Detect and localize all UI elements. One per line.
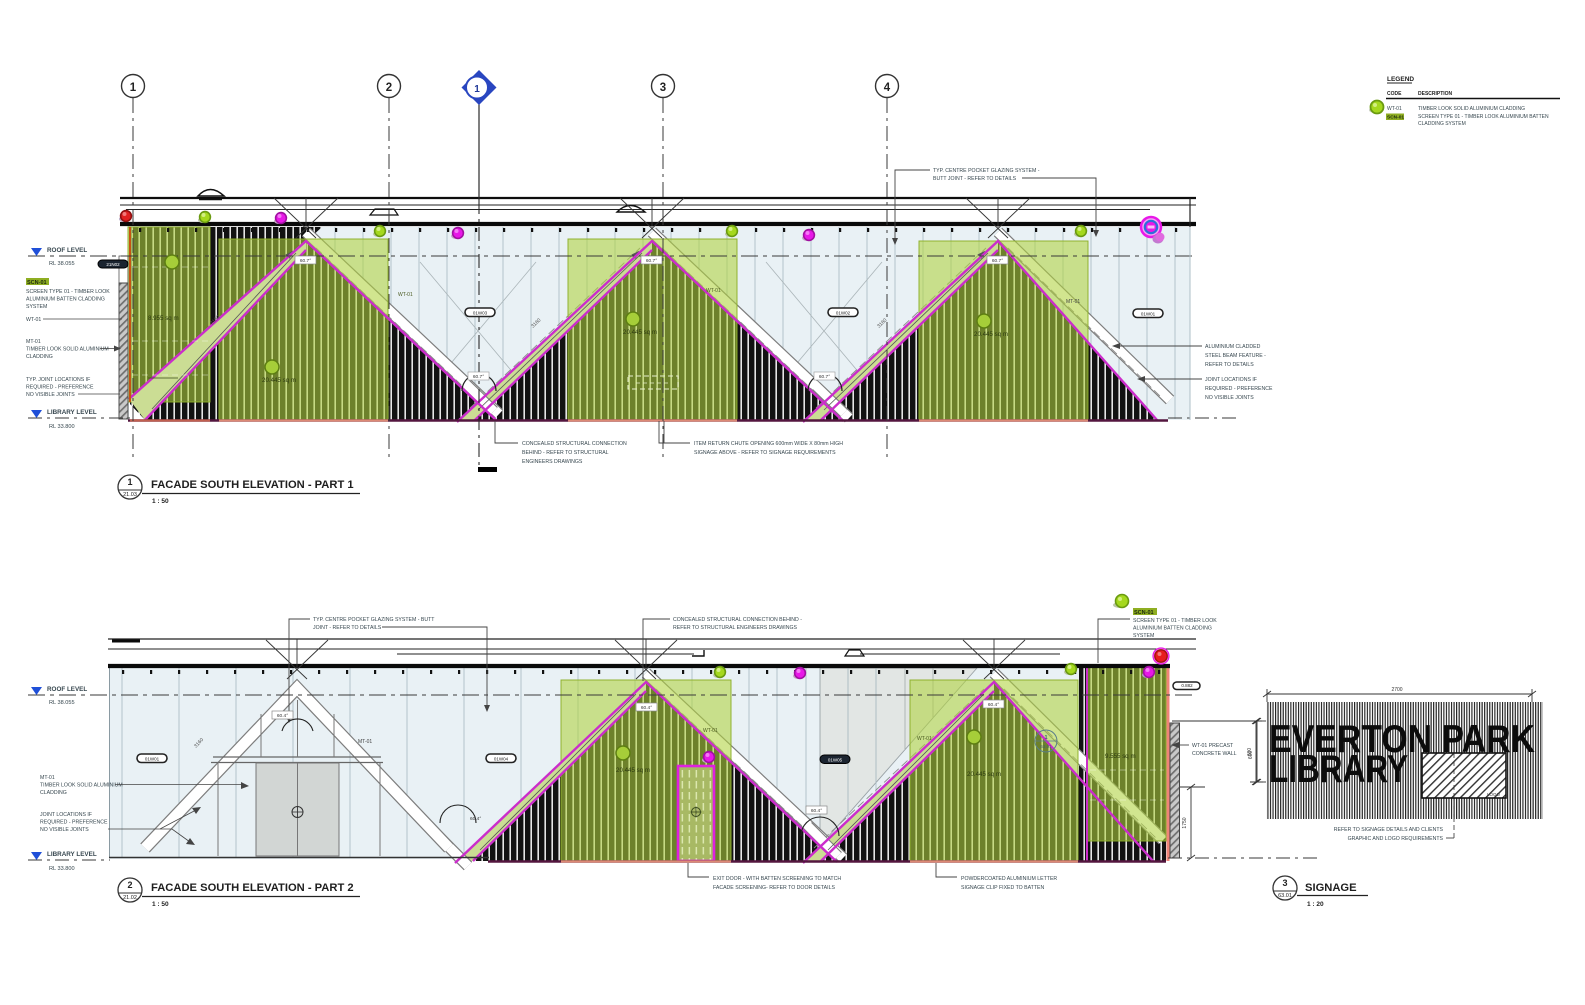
svg-text:RL 38.055: RL 38.055 xyxy=(49,700,75,706)
svg-text:MT-01: MT-01 xyxy=(1066,299,1080,305)
svg-text:1: 1 xyxy=(130,82,137,94)
svg-text:60.7°: 60.7° xyxy=(992,258,1003,264)
svg-text:FACADE SOUTH ELEVATION - PART: FACADE SOUTH ELEVATION - PART 1 xyxy=(151,479,354,491)
svg-text:JOINT - REFER TO DETAILS: JOINT - REFER TO DETAILS xyxy=(313,625,382,631)
svg-text:60.4°: 60.4° xyxy=(277,713,288,719)
svg-text:1 : 20: 1 : 20 xyxy=(1307,901,1324,908)
svg-text:SIGNAGE CLIP FIXED TO BATTEN: SIGNAGE CLIP FIXED TO BATTEN xyxy=(961,885,1044,891)
svg-text:ALUMINIUM CLADDED: ALUMINIUM CLADDED xyxy=(1205,344,1261,350)
svg-text:8.955 sq m: 8.955 sq m xyxy=(148,315,179,322)
svg-text:01W04: 01W04 xyxy=(494,757,509,762)
svg-text:TIMBER LOOK SOLID ALUMINIUM CL: TIMBER LOOK SOLID ALUMINIUM CLADDING xyxy=(1418,106,1525,112)
svg-text:TYP. CENTRE POCKET GLAZING SYS: TYP. CENTRE POCKET GLAZING SYSTEM - BUTT xyxy=(313,617,435,623)
svg-text:0.882: 0.882 xyxy=(1181,683,1193,688)
svg-text:SYSTEM: SYSTEM xyxy=(26,304,47,310)
svg-text:LIBRARY LEVEL: LIBRARY LEVEL xyxy=(47,851,97,858)
svg-text:WT-01: WT-01 xyxy=(1387,106,1402,112)
svg-text:ROOF LEVEL: ROOF LEVEL xyxy=(47,686,87,693)
svg-text:60.4°: 60.4° xyxy=(811,808,822,814)
svg-text:REQUIRED - PREFERENCE: REQUIRED - PREFERENCE xyxy=(26,385,94,391)
svg-text:JOINT LOCATIONS IF: JOINT LOCATIONS IF xyxy=(1205,377,1257,383)
svg-text:ALUMINIUM BATTEN CLADDING: ALUMINIUM BATTEN CLADDING xyxy=(1133,626,1212,632)
svg-text:CONCEALED STRUCTURAL CONNECTIO: CONCEALED STRUCTURAL CONNECTION BEHIND - xyxy=(673,617,802,623)
svg-text:CONCRETE WALL: CONCRETE WALL xyxy=(1192,751,1237,757)
svg-text:LEGEND: LEGEND xyxy=(1387,76,1414,83)
svg-text:DESCRIPTION: DESCRIPTION xyxy=(1418,91,1453,97)
svg-text:FACADE SOUTH ELEVATION - PART: FACADE SOUTH ELEVATION - PART 2 xyxy=(151,882,354,894)
svg-text:01W03: 01W03 xyxy=(473,311,488,316)
svg-text:SCN-01: SCN-01 xyxy=(1387,115,1404,121)
svg-text:63.01: 63.01 xyxy=(1040,744,1052,749)
svg-text:NO VISIBLE JOINTS: NO VISIBLE JOINTS xyxy=(26,392,75,398)
svg-text:63.01: 63.01 xyxy=(1278,893,1292,899)
svg-text:MT-01: MT-01 xyxy=(358,739,372,745)
svg-text:1750: 1750 xyxy=(1182,817,1188,828)
svg-text:SCREEN TYPE 01 - TIMBER LOOK A: SCREEN TYPE 01 - TIMBER LOOK ALUMINIUM B… xyxy=(1418,114,1549,120)
svg-text:LOGO: LOGO xyxy=(1487,792,1501,797)
svg-text:WT-01: WT-01 xyxy=(917,736,932,742)
svg-text:NO VISIBLE JOINTS: NO VISIBLE JOINTS xyxy=(40,827,89,833)
svg-text:01W02: 01W02 xyxy=(836,311,851,316)
svg-text:JOINT LOCATIONS IF: JOINT LOCATIONS IF xyxy=(40,812,92,818)
svg-text:STEEL BEAM FEATURE -: STEEL BEAM FEATURE - xyxy=(1205,353,1266,359)
svg-text:21.03: 21.03 xyxy=(123,492,137,498)
svg-text:2: 2 xyxy=(127,880,132,890)
svg-text:REFER TO STRUCTURAL ENGINEERS: REFER TO STRUCTURAL ENGINEERS DRAWINGS xyxy=(673,625,797,631)
svg-text:01W01: 01W01 xyxy=(145,757,160,762)
svg-text:ROOF LEVEL: ROOF LEVEL xyxy=(47,247,87,254)
svg-text:WT-01: WT-01 xyxy=(26,317,41,323)
svg-text:TIMBER LOOK SOLID ALUMINIUM: TIMBER LOOK SOLID ALUMINIUM xyxy=(40,783,123,789)
svg-text:01W05: 01W05 xyxy=(828,758,843,763)
svg-text:60.4°: 60.4° xyxy=(641,705,652,711)
svg-text:BEHIND - REFER TO STRUCTURAL: BEHIND - REFER TO STRUCTURAL xyxy=(522,450,609,456)
svg-text:01W01: 01W01 xyxy=(1141,312,1156,317)
svg-text:CLADDING: CLADDING xyxy=(26,354,53,360)
svg-text:SIGNAGE: SIGNAGE xyxy=(1305,882,1357,894)
svg-text:ITEM RETURN CHUTE OPENING 600m: ITEM RETURN CHUTE OPENING 600mm WIDE X 8… xyxy=(694,441,843,447)
svg-text:CLADDING SYSTEM: CLADDING SYSTEM xyxy=(1418,121,1466,127)
svg-text:SIGNAGE ABOVE - REFER TO SIGNA: SIGNAGE ABOVE - REFER TO SIGNAGE REQUIRE… xyxy=(694,450,836,456)
svg-text:WT-01: WT-01 xyxy=(706,288,721,294)
svg-text:60.7°: 60.7° xyxy=(300,258,311,264)
svg-text:21N02: 21N02 xyxy=(106,262,120,267)
svg-text:POWDERCOATED ALUMINIUM LETTER: POWDERCOATED ALUMINIUM LETTER xyxy=(961,876,1057,882)
svg-text:20.445 sq m: 20.445 sq m xyxy=(974,331,1008,338)
svg-text:MT-01: MT-01 xyxy=(26,339,41,345)
svg-text:4: 4 xyxy=(884,82,891,94)
svg-text:60.7°: 60.7° xyxy=(819,374,830,380)
svg-text:60.7°: 60.7° xyxy=(646,258,657,264)
svg-text:RL 33.800: RL 33.800 xyxy=(49,866,75,872)
svg-text:60.4°: 60.4° xyxy=(988,702,999,708)
svg-text:TIMBER LOOK SOLID ALUMINIUM: TIMBER LOOK SOLID ALUMINIUM xyxy=(26,347,109,353)
svg-text:SCREEN TYPE 01 - TIMBER LOOK: SCREEN TYPE 01 - TIMBER LOOK xyxy=(26,289,110,295)
svg-text:REFER TO DETAILS: REFER TO DETAILS xyxy=(1205,362,1254,368)
svg-text:60.7°: 60.7° xyxy=(473,374,484,380)
svg-text:RL 33.800: RL 33.800 xyxy=(49,424,75,430)
svg-text:BUTT JOINT - REFER TO DETAILS: BUTT JOINT - REFER TO DETAILS xyxy=(933,176,1017,182)
svg-text:3: 3 xyxy=(1282,878,1287,888)
svg-text:CLADDING: CLADDING xyxy=(40,790,67,796)
svg-text:REFER TO SIGNAGE DETAILS AND C: REFER TO SIGNAGE DETAILS AND CLIENTS xyxy=(1334,827,1444,833)
svg-text:20.445 sq m: 20.445 sq m xyxy=(616,767,650,774)
svg-text:SCN-01: SCN-01 xyxy=(27,280,47,286)
svg-text:20.445 sq m: 20.445 sq m xyxy=(967,771,1001,778)
svg-text:CODE: CODE xyxy=(1387,91,1402,97)
svg-text:WT-01: WT-01 xyxy=(703,728,718,734)
svg-text:REQUIRED - PREFERENCE: REQUIRED - PREFERENCE xyxy=(40,820,108,826)
svg-text:GRAPHIC AND LOGO REQUIREMENTS: GRAPHIC AND LOGO REQUIREMENTS xyxy=(1348,836,1444,842)
svg-text:21.02: 21.02 xyxy=(123,895,137,901)
svg-text:1 : 50: 1 : 50 xyxy=(152,498,169,505)
svg-text:20.445 sq m: 20.445 sq m xyxy=(262,377,296,384)
svg-text:SCN-01: SCN-01 xyxy=(1134,610,1154,616)
svg-text:SYSTEM: SYSTEM xyxy=(1133,633,1154,639)
svg-text:SCREEN TYPE 01 - TIMBER LOOK: SCREEN TYPE 01 - TIMBER LOOK xyxy=(1133,618,1217,624)
svg-text:3: 3 xyxy=(660,82,666,94)
svg-text:MT-01: MT-01 xyxy=(40,775,55,781)
svg-text:1: 1 xyxy=(127,477,132,487)
svg-text:LIBRARY LEVEL: LIBRARY LEVEL xyxy=(47,409,97,416)
svg-text:REQUIRED - PREFERENCE: REQUIRED - PREFERENCE xyxy=(1205,386,1273,392)
svg-text:FACADE SCREENING- REFER TO DOO: FACADE SCREENING- REFER TO DOOR DETAILS xyxy=(713,885,835,891)
svg-text:ALUMINIUM BATTEN CLADDING: ALUMINIUM BATTEN CLADDING xyxy=(26,297,105,303)
svg-text:2: 2 xyxy=(386,82,392,94)
svg-text:CONCEALED STRUCTURAL CONNECTIO: CONCEALED STRUCTURAL CONNECTION xyxy=(522,441,627,447)
svg-text:NO VISIBLE JOINTS: NO VISIBLE JOINTS xyxy=(1205,395,1254,401)
svg-text:EXIT DOOR - WITH BATTEN SCREEN: EXIT DOOR - WITH BATTEN SCREENING TO MAT… xyxy=(713,876,841,882)
svg-text:1 : 50: 1 : 50 xyxy=(152,901,169,908)
svg-text:60.4°: 60.4° xyxy=(470,816,481,822)
svg-text:20.445 sq m: 20.445 sq m xyxy=(623,329,657,336)
svg-text:2700: 2700 xyxy=(1391,687,1402,693)
svg-text:WT-01 PRECAST: WT-01 PRECAST xyxy=(1192,743,1234,749)
svg-text:9.555 sq m: 9.555 sq m xyxy=(1105,753,1136,760)
svg-text:ENGINEERS DRAWINGS: ENGINEERS DRAWINGS xyxy=(522,459,583,465)
svg-text:1: 1 xyxy=(1044,735,1047,741)
svg-text:600: 600 xyxy=(1247,748,1253,757)
svg-text:RL 38.055: RL 38.055 xyxy=(49,261,75,267)
svg-text:WT-01: WT-01 xyxy=(398,292,413,298)
svg-text:1: 1 xyxy=(474,84,480,95)
svg-text:TYP. JOINT LOCATIONS IF: TYP. JOINT LOCATIONS IF xyxy=(26,377,90,383)
svg-text:LIBRARY: LIBRARY xyxy=(1269,748,1408,791)
svg-text:TYP. CENTRE POCKET GLAZING SYS: TYP. CENTRE POCKET GLAZING SYSTEM - xyxy=(933,168,1040,174)
